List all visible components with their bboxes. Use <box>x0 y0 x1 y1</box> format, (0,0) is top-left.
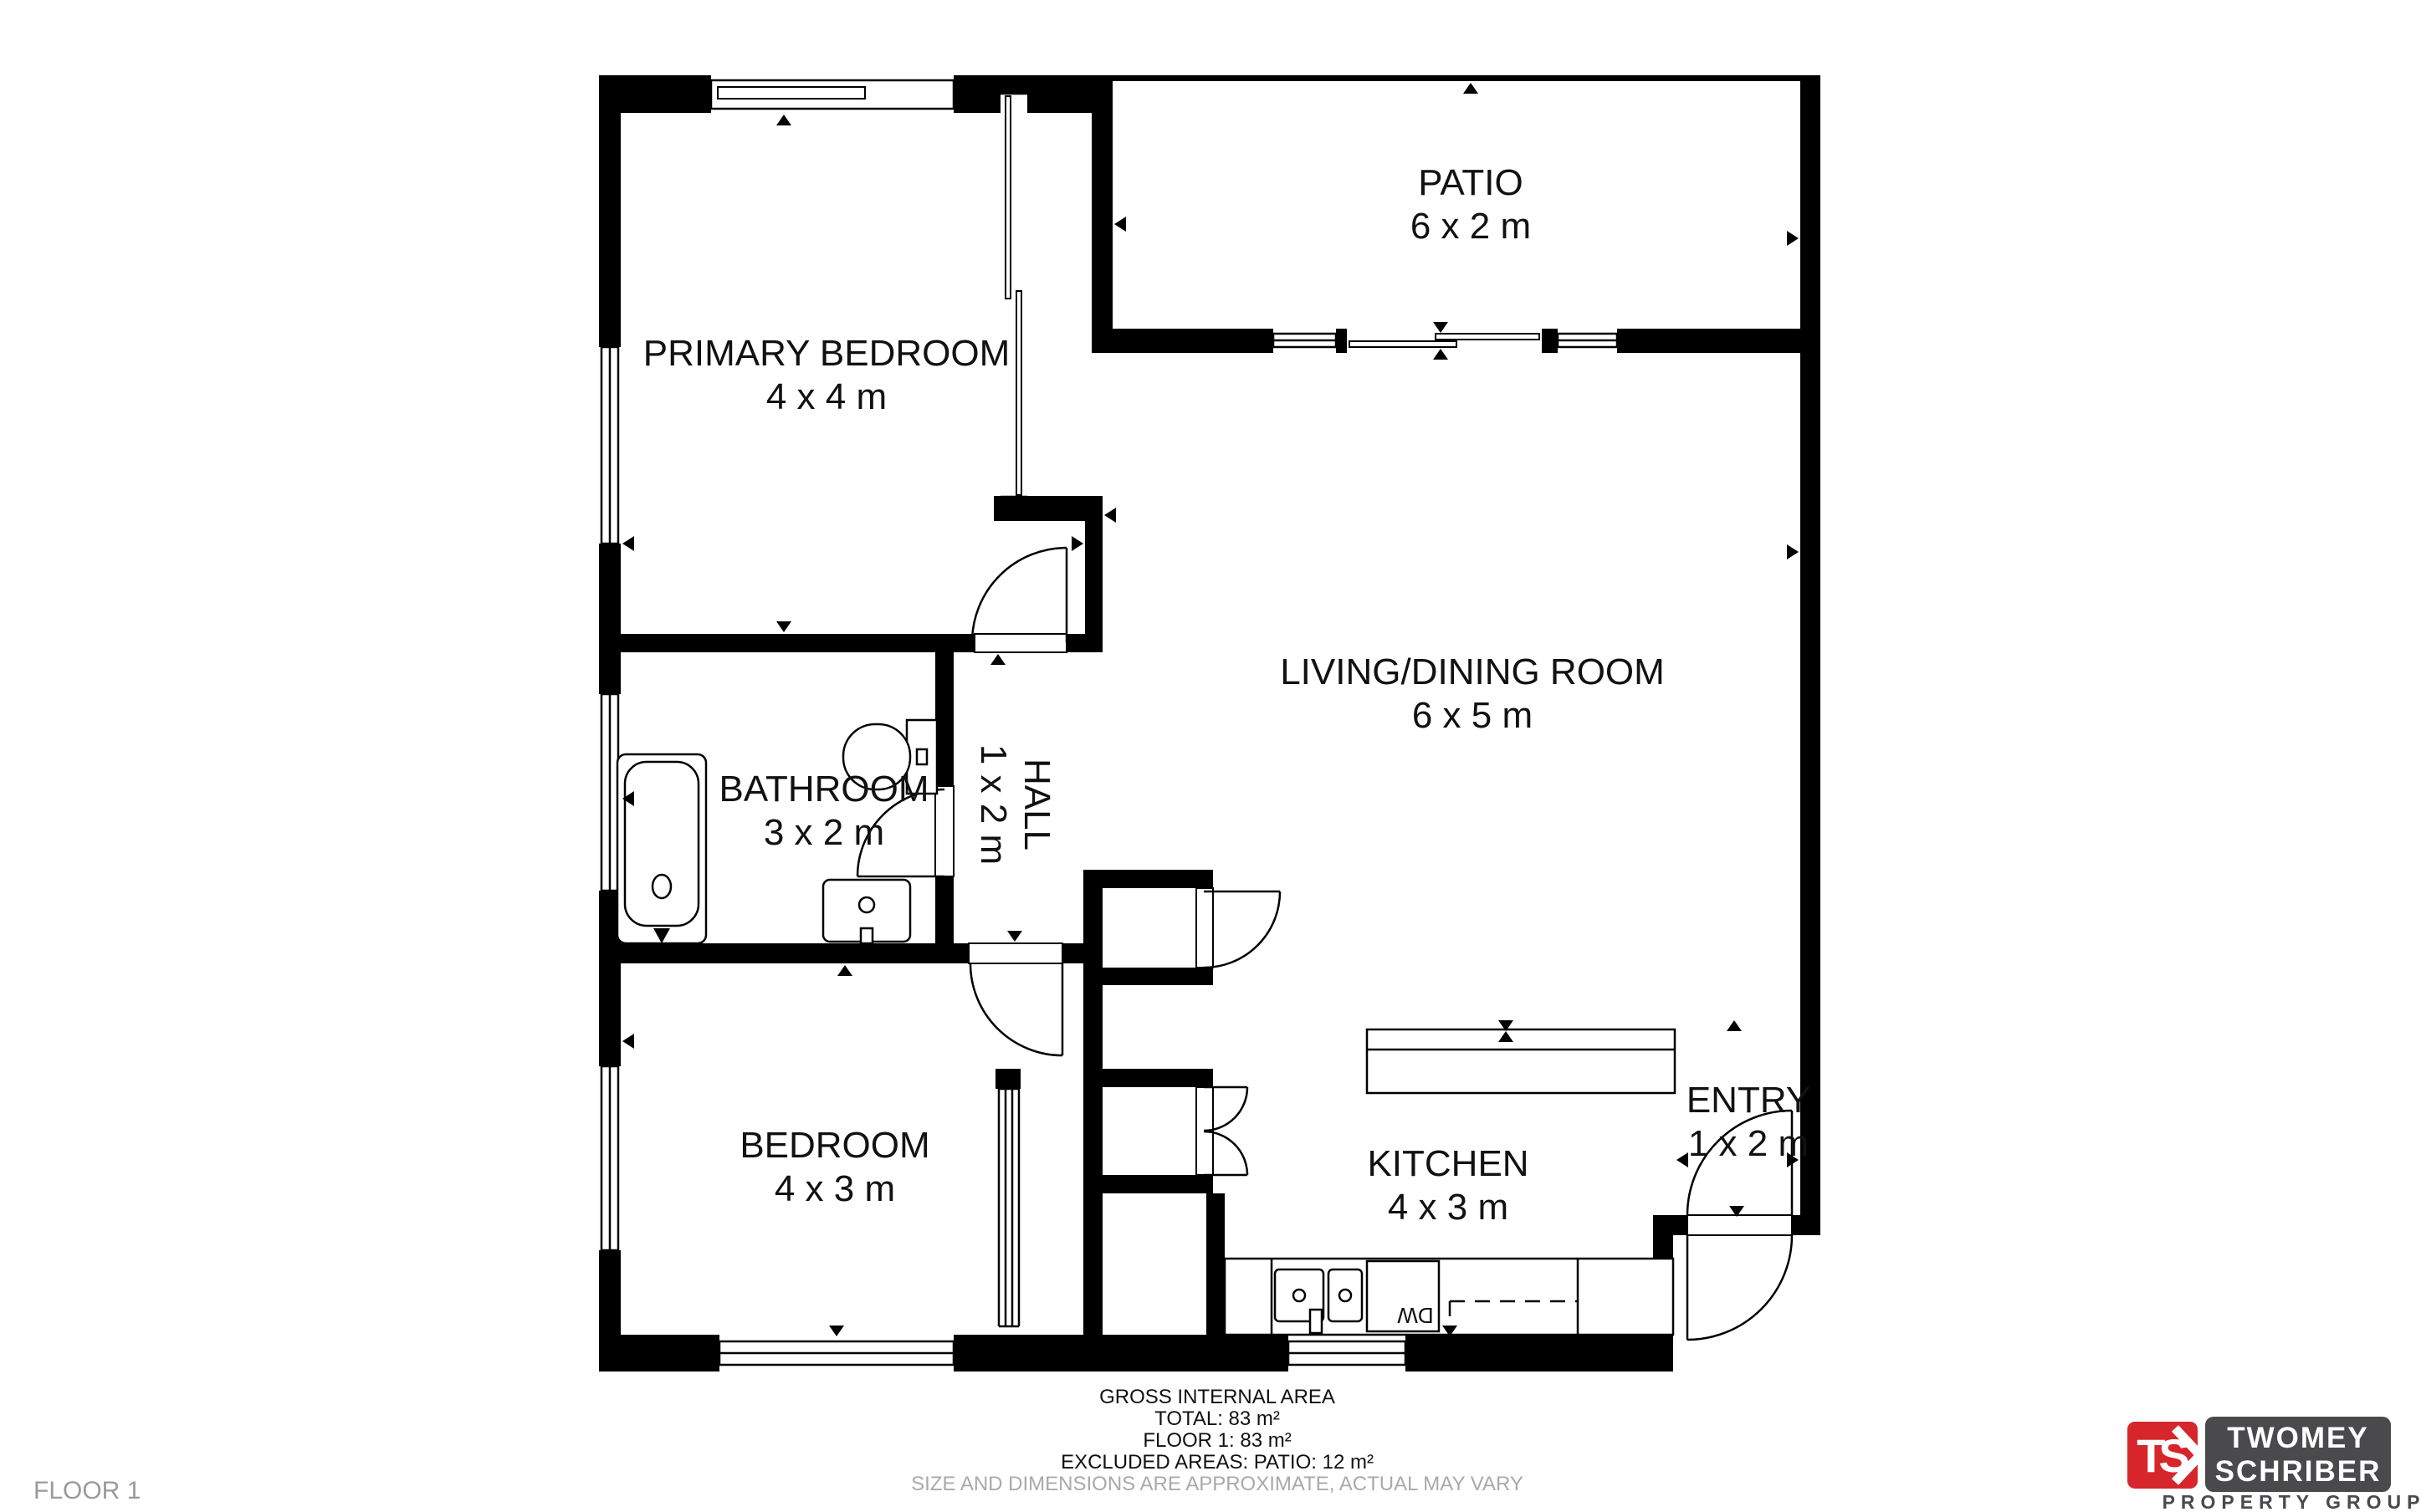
window <box>1558 334 1617 347</box>
dishwasher-icon: DW <box>1367 1261 1439 1331</box>
floor-label: FLOOR 1 <box>33 1477 141 1504</box>
brand-logo: TS TWOMEY SCHRIBER PROPERTY GROUP <box>2127 1417 2421 1512</box>
room-dims-hall: 1 x 2 m <box>973 744 1014 865</box>
sliding-door-patio <box>1347 329 1542 353</box>
excluded-area-text: EXCLUDED AREAS: PATIO: 12 m² <box>1061 1451 1374 1474</box>
door-bedroom <box>969 943 1062 1055</box>
hall-label-group: HALL 1 x 2 m <box>973 744 1057 865</box>
logo-tagline: PROPERTY GROUP <box>2163 1491 2421 1512</box>
window <box>597 347 622 544</box>
window <box>719 1333 954 1373</box>
room-dims-primary-bedroom: 4 x 4 m <box>766 376 887 417</box>
sliding-door-bedroom <box>1001 94 1027 497</box>
logo-name-line1: TWOMEY <box>2227 1422 2368 1454</box>
room-dims-entry: 1 x 2 m <box>1688 1123 1809 1164</box>
room-label-bathroom: BATHROOM <box>719 769 929 810</box>
room-label-living-dining: LIVING/DINING ROOM <box>1280 651 1665 692</box>
room-label-entry: ENTRY <box>1687 1080 1810 1121</box>
room-dims-bathroom: 3 x 2 m <box>764 812 884 853</box>
wardrobe-sliding-doors <box>999 1089 1019 1326</box>
room-label-bedroom: BEDROOM <box>740 1125 929 1166</box>
room-dims-kitchen: 4 x 3 m <box>1388 1187 1508 1228</box>
door-front <box>1687 1235 1792 1340</box>
area-summary: GROSS INTERNAL AREA TOTAL: 83 m² FLOOR 1… <box>911 1386 1523 1495</box>
bathroom-sink-icon <box>823 880 910 943</box>
floor-plan-canvas: DW <box>0 0 2421 1512</box>
kitchen-island <box>1367 1029 1675 1093</box>
total-area-text: TOTAL: 83 m² <box>1154 1407 1280 1430</box>
room-label-patio: PATIO <box>1418 162 1523 203</box>
room-label-primary-bedroom: PRIMARY BEDROOM <box>643 333 1010 374</box>
door-closet-a <box>1196 888 1280 968</box>
room-label-kitchen: KITCHEN <box>1367 1143 1528 1184</box>
window <box>711 74 954 115</box>
room-label-hall: HALL <box>1016 759 1057 850</box>
room-dims-bedroom: 4 x 3 m <box>775 1168 895 1209</box>
logo-name-line2: SCHRIBER <box>2215 1455 2382 1488</box>
window <box>597 1066 622 1250</box>
logo-monogram: TS <box>2137 1429 2188 1482</box>
door-primary-bedroom <box>972 548 1067 652</box>
dishwasher-label: DW <box>1397 1303 1434 1328</box>
gross-internal-area-title: GROSS INTERNAL AREA <box>1099 1386 1335 1408</box>
window <box>1288 1333 1405 1373</box>
window <box>1273 334 1336 347</box>
door-closet-b <box>1196 1087 1247 1175</box>
floor-plan-page: DW <box>0 0 2421 1512</box>
floor1-area-text: FLOOR 1: 83 m² <box>1143 1429 1291 1452</box>
room-dims-patio: 6 x 2 m <box>1410 206 1531 247</box>
room-dims-living-dining: 6 x 5 m <box>1412 695 1533 736</box>
bathtub-icon <box>617 754 706 943</box>
disclaimer-text: SIZE AND DIMENSIONS ARE APPROXIMATE, ACT… <box>911 1473 1523 1495</box>
